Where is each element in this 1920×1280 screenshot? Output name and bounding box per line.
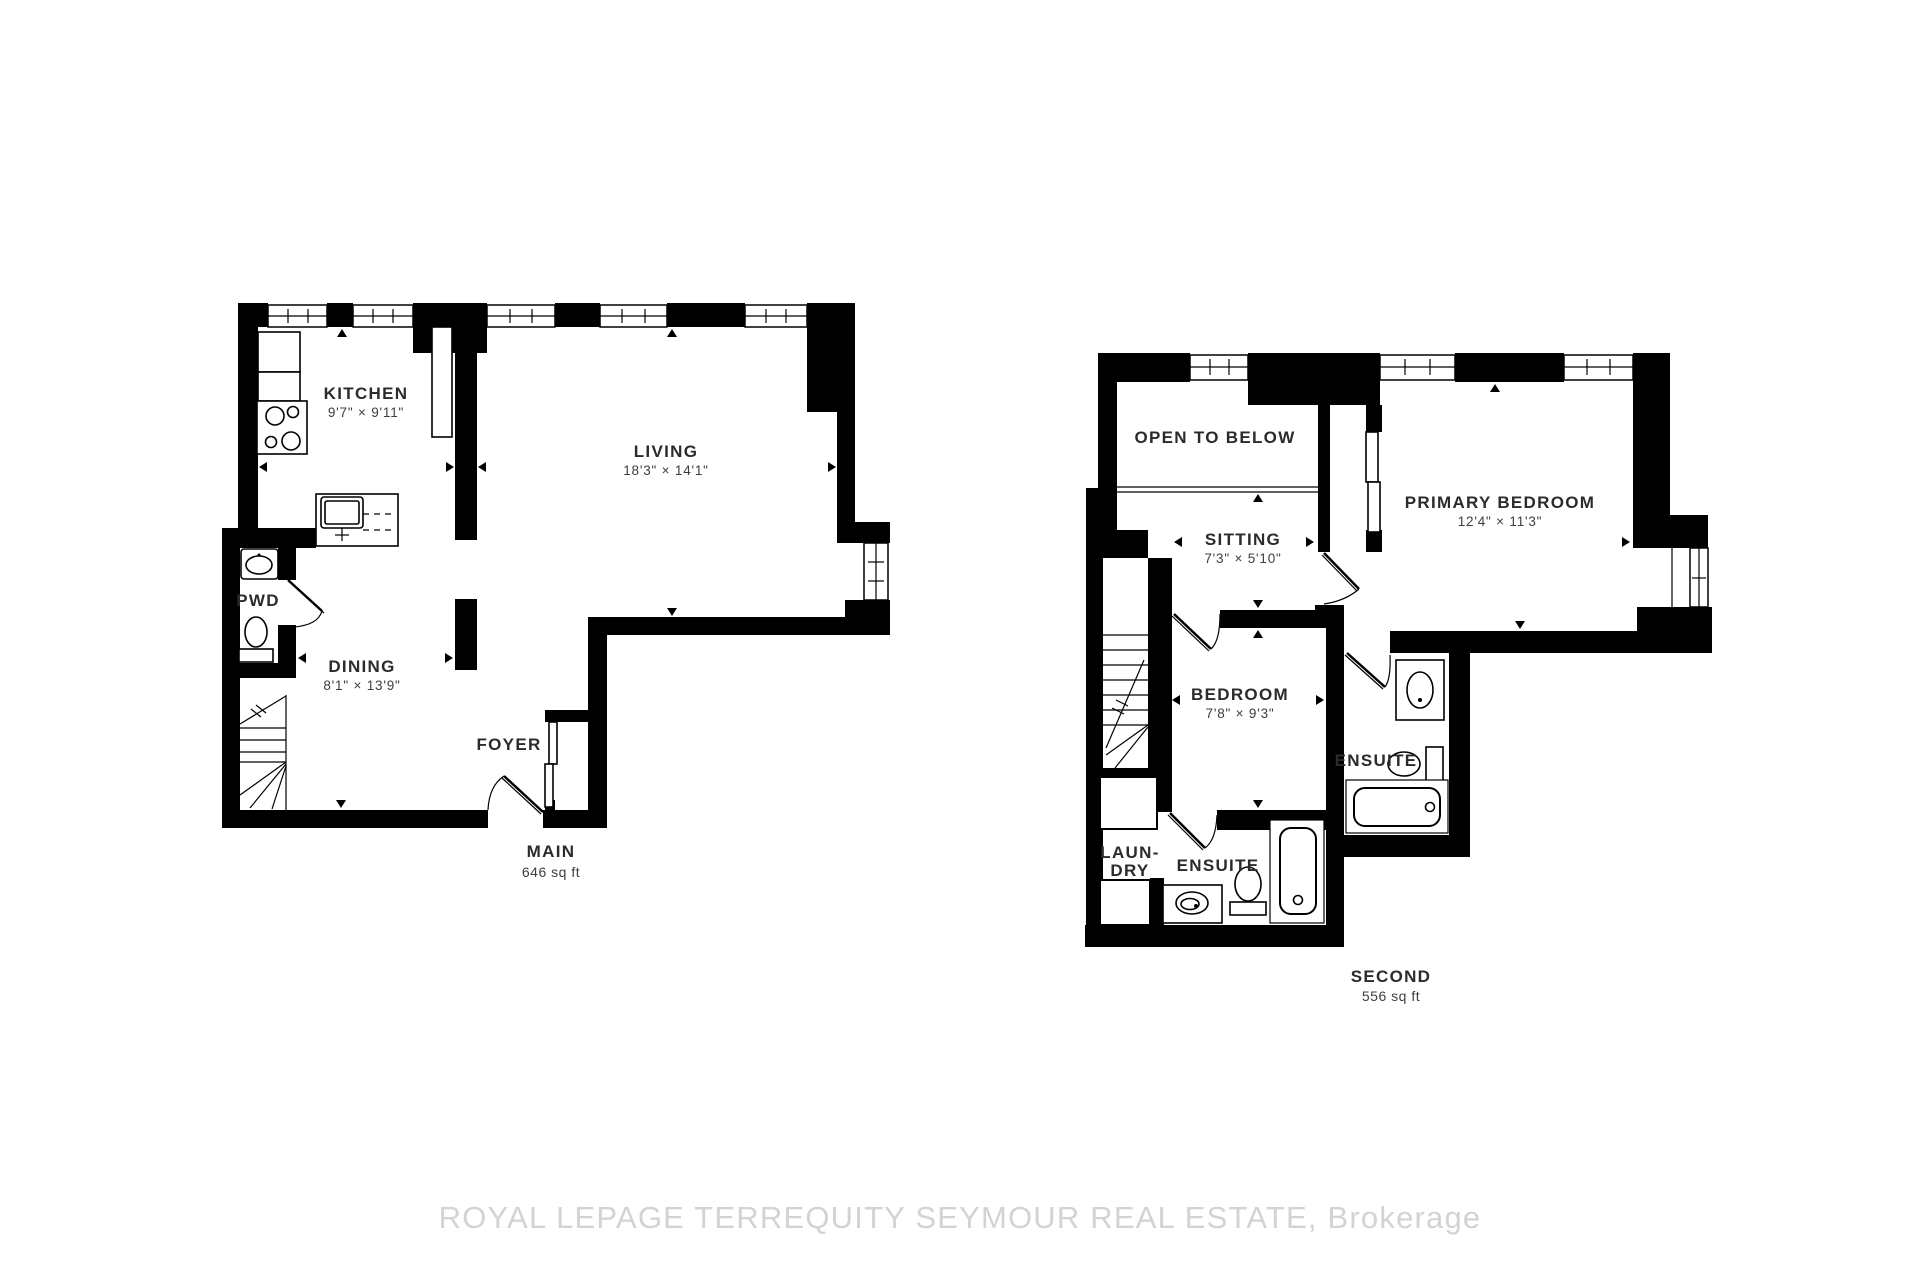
closet-doors-icon [545, 722, 557, 807]
second-floor-plan: OPEN TO BELOW SITTING 7'3" × 5'10" PRIMA… [1085, 353, 1712, 1004]
primary-bedroom-dimensions: 12'4" × 11'3" [1458, 514, 1543, 529]
primary-ensuite-door-icon [1345, 653, 1390, 689]
second-floor-title: SECOND [1351, 967, 1432, 986]
bathtub-icon [1346, 780, 1448, 833]
main-floor-title: MAIN [527, 842, 576, 861]
entry-door-icon [488, 776, 543, 814]
second-floor-area: 556 sq ft [1362, 988, 1420, 1004]
primary-bedroom-label: PRIMARY BEDROOM [1405, 493, 1595, 512]
window-icon [1672, 548, 1708, 607]
powder-door-icon [288, 580, 324, 627]
toilet-icon [239, 617, 273, 662]
living-dimensions: 18'3" × 14'1" [623, 463, 709, 478]
window-icon [487, 305, 555, 327]
sitting-bedroom-door-icon [1172, 614, 1220, 651]
floorplan-drawing: KITCHEN 9'7" × 9'11" LIVING 18'3" × 14'1… [0, 0, 1920, 1280]
powder-sink-icon [241, 549, 278, 579]
railing-icon [1117, 487, 1318, 492]
kitchen-sink-icon [316, 494, 398, 546]
foyer-label: FOYER [476, 735, 541, 754]
open-to-below-label: OPEN TO BELOW [1134, 428, 1295, 447]
dining-dimensions: 8'1" × 13'9" [323, 678, 400, 693]
bathtub-icon [1270, 820, 1324, 923]
laundry-label-line2: DRY [1110, 861, 1149, 880]
window-icon [864, 543, 888, 600]
bedroom-label: BEDROOM [1191, 685, 1289, 704]
stairs-icon [1103, 635, 1148, 768]
sitting-primary-door-icon [1322, 553, 1359, 604]
brokerage-watermark: ROYAL LEPAGE TERREQUITY SEYMOUR REAL EST… [0, 1200, 1920, 1236]
main-floor-area: 646 sq ft [522, 864, 580, 880]
kitchen-dimensions: 9'7" × 9'11" [328, 405, 404, 420]
bedroom-ensuite-door-icon [1168, 813, 1217, 850]
second-measure-markers [1172, 384, 1630, 808]
kitchen-label: KITCHEN [324, 384, 409, 403]
primary-ensuite-label: ENSUITE [1335, 751, 1418, 770]
main-windows [268, 305, 888, 600]
ensuite-sink-icon [1163, 885, 1222, 923]
fridge-icon [258, 332, 300, 401]
living-label: LIVING [634, 442, 698, 461]
laundry-label-line1: LAUN- [1100, 843, 1159, 862]
window-icon [268, 305, 327, 327]
sitting-dimensions: 7'3" × 5'10" [1204, 551, 1281, 566]
powder-room-label: PWD [236, 591, 280, 610]
stairs-icon [240, 695, 286, 810]
washer-icon [1100, 777, 1157, 829]
window-icon [353, 305, 413, 327]
stove-icon [257, 401, 307, 454]
window-icon [745, 305, 807, 327]
bedroom-dimensions: 7'8" × 9'3" [1206, 706, 1275, 721]
floorplan-page: KITCHEN 9'7" × 9'11" LIVING 18'3" × 14'1… [0, 0, 1920, 1280]
bedroom-ensuite-label: ENSUITE [1177, 856, 1260, 875]
pantry-counter-icon [432, 327, 452, 437]
window-icon [1380, 355, 1455, 380]
closet-doors-icon [1366, 432, 1380, 532]
window-icon [600, 305, 667, 327]
main-floor-plan: KITCHEN 9'7" × 9'11" LIVING 18'3" × 14'1… [222, 303, 890, 880]
sitting-label: SITTING [1205, 530, 1281, 549]
window-icon [1190, 355, 1248, 380]
dining-label: DINING [328, 657, 395, 676]
ensuite-sink-icon [1396, 660, 1444, 720]
window-icon [1564, 355, 1633, 380]
dryer-icon [1100, 880, 1150, 925]
